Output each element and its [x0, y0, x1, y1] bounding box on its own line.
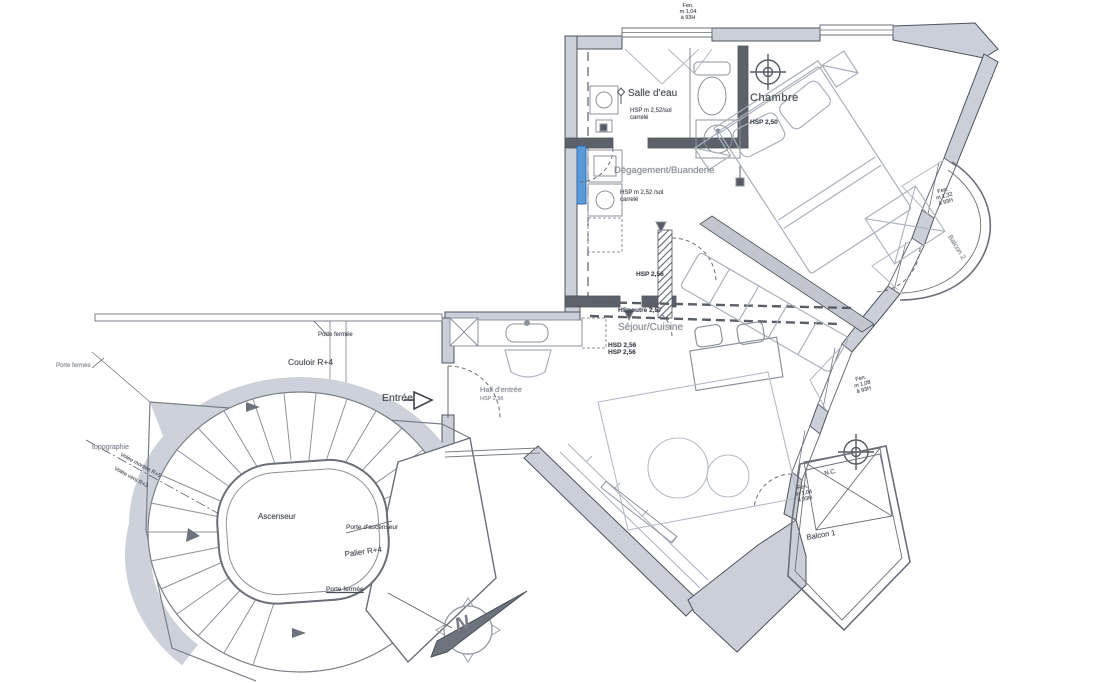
sill-band [560, 444, 708, 588]
staircase [86, 390, 496, 681]
room-label-sejour: Séjour/Cuisine [618, 322, 683, 334]
rug [598, 372, 798, 530]
note-porte-fermee-left: Porte fermée [56, 363, 91, 370]
note-hsp-mid: HSP 2,56 [636, 271, 664, 278]
window-note-balcon1: Fen. m 1,04 à 93H [794, 483, 814, 504]
bed [691, 46, 936, 290]
note-topographie: topographie [92, 444, 129, 452]
room-note-sejour: HSD 2,56 HSP 2,56 [608, 342, 636, 357]
floor-plan-page: Fen. m 1,04 à 93H Salle d'eau HSP m 2,52… [0, 0, 1110, 683]
room-label-hall: Hall d'entrée [480, 386, 522, 395]
room-note-degagement: HSP m 2,52 /sol carrelé [620, 190, 663, 204]
blue-highlight-marker [577, 146, 586, 204]
room-label-couloir: Couloir R+4 [288, 358, 333, 368]
dining-table [686, 315, 783, 390]
room-note-chambre: HSP 2,50 [750, 119, 778, 126]
hall-armchair [505, 350, 551, 377]
interior-walls [565, 46, 874, 332]
floor-plan-drawing [0, 0, 1110, 683]
room-note-hall: HSP 2,56 [480, 396, 503, 402]
window-note-top: Fen. m 1,04 à 93H [668, 3, 708, 21]
room-label-ascenseur: Ascenseur [258, 512, 296, 521]
note-porte-fermee-couloir: Porte fermée [318, 332, 353, 339]
label-entree: Entrée [382, 392, 413, 404]
kitchen-counter [450, 318, 606, 348]
room-note-salle-deau: HSP m 2,52/sol carrelé [630, 108, 672, 122]
elevator [213, 456, 392, 608]
room-label-degagement: Dégagement/Buanderie [614, 166, 714, 177]
room-label-chambre: Chambre [750, 92, 799, 105]
note-porte-ascenseur: Porte d'ascenseur [346, 524, 398, 531]
note-beam: HSpoutre 2,57 [618, 307, 662, 314]
room-label-salle-deau: Salle d'eau [628, 88, 677, 100]
note-porte-fermee-palier: Porte fermée [326, 586, 364, 593]
sofa [680, 252, 849, 373]
